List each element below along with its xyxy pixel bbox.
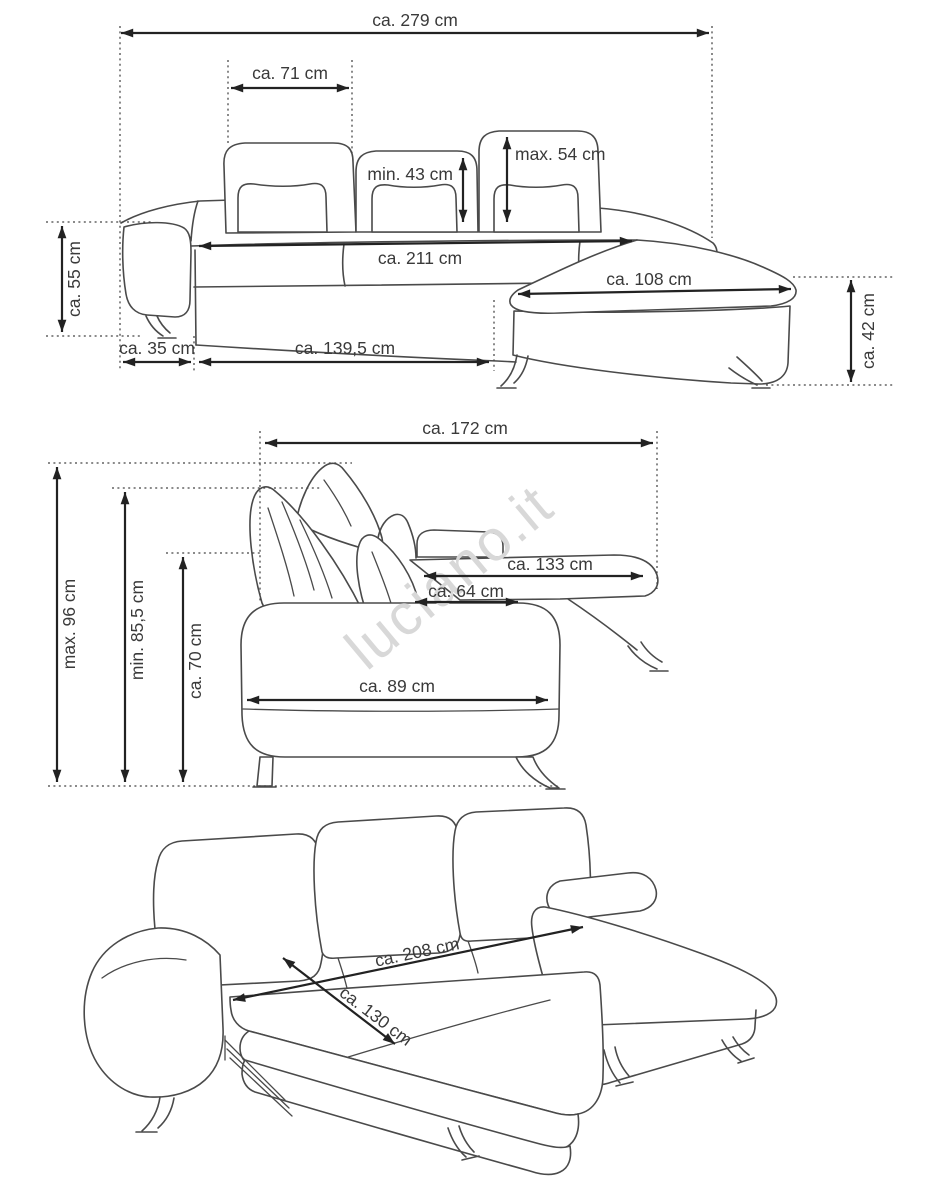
dim-total-width-label: ca. 279 cm: [372, 10, 458, 30]
dim-total-depth-label: ca. 172 cm: [422, 418, 508, 438]
dim-armrest-height-label: ca. 70 cm: [185, 623, 205, 699]
dim-left-side-height-label: ca. 55 cm: [64, 241, 84, 317]
dim-backrest-min-height-label: min. 43 cm: [367, 164, 453, 184]
dim-seat-depth-label: ca. 64 cm: [428, 581, 504, 601]
dim-seat-depth: ca. 64 cm: [415, 581, 518, 602]
sofa-dimension-diagram: ca. 279 cm ca. 71 cm min. 43 cm max. 54 …: [0, 0, 931, 1200]
dim-chaise-width-label: ca. 108 cm: [606, 269, 692, 289]
dim-chaise-height-label: ca. 42 cm: [858, 293, 878, 369]
dim-min-height-label: min. 85,5 cm: [127, 580, 147, 680]
dim-max-height-label: max. 96 cm: [59, 579, 79, 669]
dim-chaise-depth-label: ca. 133 cm: [507, 554, 593, 574]
dim-armrest-width-label: ca. 35 cm: [119, 338, 195, 358]
dim-seat-width-label: ca. 211 cm: [378, 248, 462, 268]
dim-left-side-height: ca. 55 cm: [62, 226, 84, 332]
dim-back-cushion-width-label: ca. 71 cm: [252, 63, 328, 83]
back-cushion-left: [224, 143, 356, 233]
dimension-diagram-page: ca. 279 cm ca. 71 cm min. 43 cm max. 54 …: [0, 0, 931, 1200]
dim-base-front-length-label: ca. 139,5 cm: [295, 338, 395, 358]
dim-armrest-depth-label: ca. 89 cm: [359, 676, 435, 696]
dim-backrest-max-height-label: max. 54 cm: [515, 144, 605, 164]
